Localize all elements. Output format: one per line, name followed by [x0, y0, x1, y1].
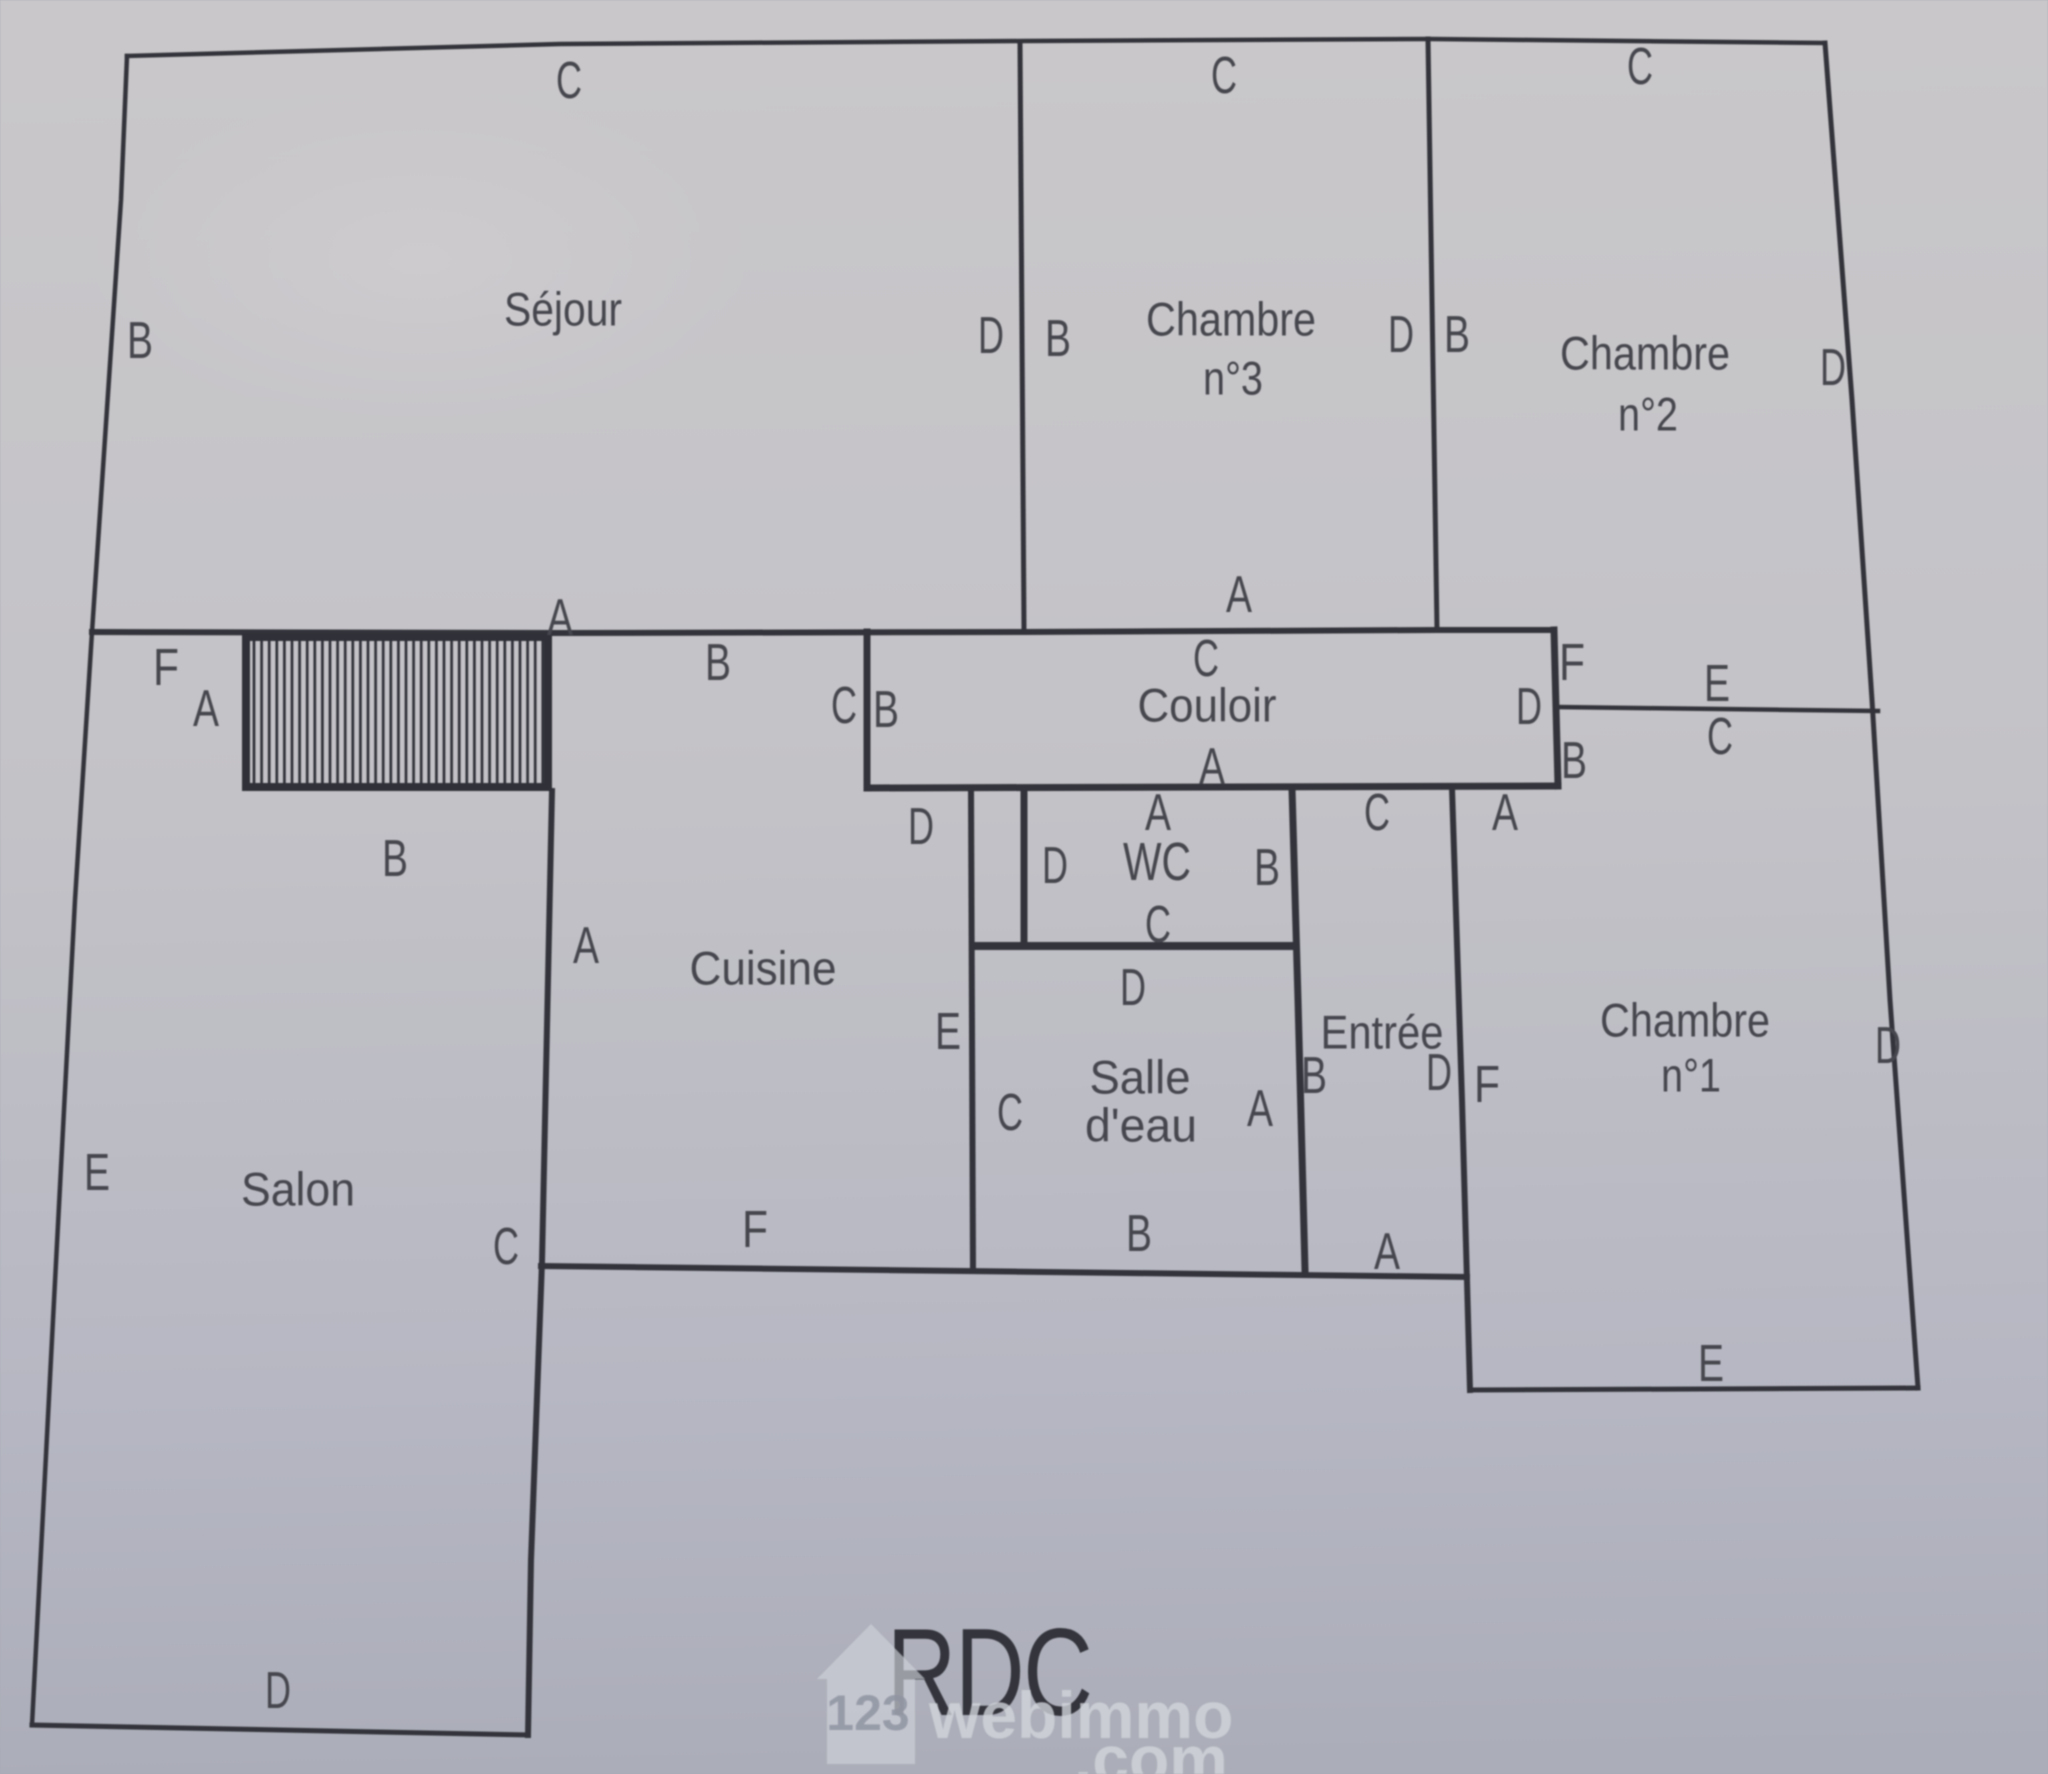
- svg-text:E: E: [1698, 1335, 1724, 1393]
- svg-text:D: D: [978, 307, 1004, 365]
- svg-text:Chambre: Chambre: [1146, 293, 1316, 346]
- svg-text:Cuisine: Cuisine: [690, 942, 837, 995]
- svg-text:F: F: [1474, 1056, 1500, 1114]
- svg-text:.com: .com: [1074, 1722, 1228, 1774]
- svg-text:A: A: [1226, 566, 1252, 624]
- svg-text:D: D: [1516, 678, 1542, 736]
- svg-text:A: A: [573, 917, 599, 975]
- svg-text:A: A: [1492, 784, 1518, 842]
- svg-text:Salle: Salle: [1090, 1051, 1191, 1104]
- svg-text:D: D: [908, 798, 934, 856]
- svg-text:A: A: [1374, 1223, 1400, 1281]
- svg-text:F: F: [153, 639, 179, 697]
- svg-text:B: B: [1444, 306, 1470, 364]
- svg-text:C: C: [493, 1218, 519, 1276]
- svg-text:B: B: [127, 312, 153, 370]
- svg-text:n°3: n°3: [1203, 352, 1263, 405]
- svg-text:Chambre: Chambre: [1560, 327, 1730, 380]
- svg-text:Chambre: Chambre: [1600, 994, 1770, 1047]
- svg-text:C: C: [556, 52, 582, 110]
- svg-text:C: C: [831, 677, 857, 735]
- svg-text:C: C: [997, 1084, 1023, 1142]
- svg-text:B: B: [1045, 310, 1071, 368]
- svg-text:B: B: [1254, 839, 1280, 897]
- svg-text:C: C: [1193, 630, 1219, 688]
- svg-text:Salon: Salon: [241, 1163, 355, 1216]
- svg-text:E: E: [1704, 655, 1730, 713]
- svg-text:B: B: [1301, 1047, 1327, 1105]
- svg-text:C: C: [1627, 38, 1653, 96]
- svg-text:D: D: [265, 1662, 291, 1720]
- svg-text:A: A: [547, 589, 573, 647]
- svg-text:D: D: [1426, 1044, 1452, 1102]
- svg-text:B: B: [1126, 1205, 1152, 1263]
- svg-text:C: C: [1211, 47, 1237, 105]
- svg-text:A: A: [1145, 784, 1171, 842]
- svg-text:Séjour: Séjour: [504, 283, 622, 336]
- svg-text:D: D: [1388, 306, 1414, 364]
- svg-text:d'eau: d'eau: [1085, 1099, 1197, 1152]
- svg-text:D: D: [1120, 959, 1146, 1017]
- svg-text:n°2: n°2: [1618, 388, 1678, 441]
- svg-text:A: A: [1199, 738, 1225, 796]
- svg-text:A: A: [193, 680, 219, 738]
- svg-text:B: B: [1561, 732, 1587, 790]
- svg-text:E: E: [84, 1144, 110, 1202]
- svg-text:n°1: n°1: [1661, 1049, 1721, 1102]
- svg-text:B: B: [705, 634, 731, 692]
- svg-text:B: B: [873, 681, 899, 739]
- svg-text:E: E: [935, 1003, 961, 1061]
- svg-text:B: B: [382, 830, 408, 888]
- svg-text:C: C: [1707, 708, 1733, 766]
- svg-text:D: D: [1875, 1017, 1901, 1075]
- svg-text:123: 123: [826, 1685, 909, 1741]
- svg-text:C: C: [1364, 784, 1390, 842]
- svg-text:D: D: [1042, 837, 1068, 895]
- svg-text:D: D: [1820, 339, 1846, 397]
- svg-text:F: F: [1559, 634, 1585, 692]
- svg-text:A: A: [1247, 1080, 1273, 1138]
- svg-text:C: C: [1145, 896, 1171, 954]
- svg-text:F: F: [742, 1201, 768, 1259]
